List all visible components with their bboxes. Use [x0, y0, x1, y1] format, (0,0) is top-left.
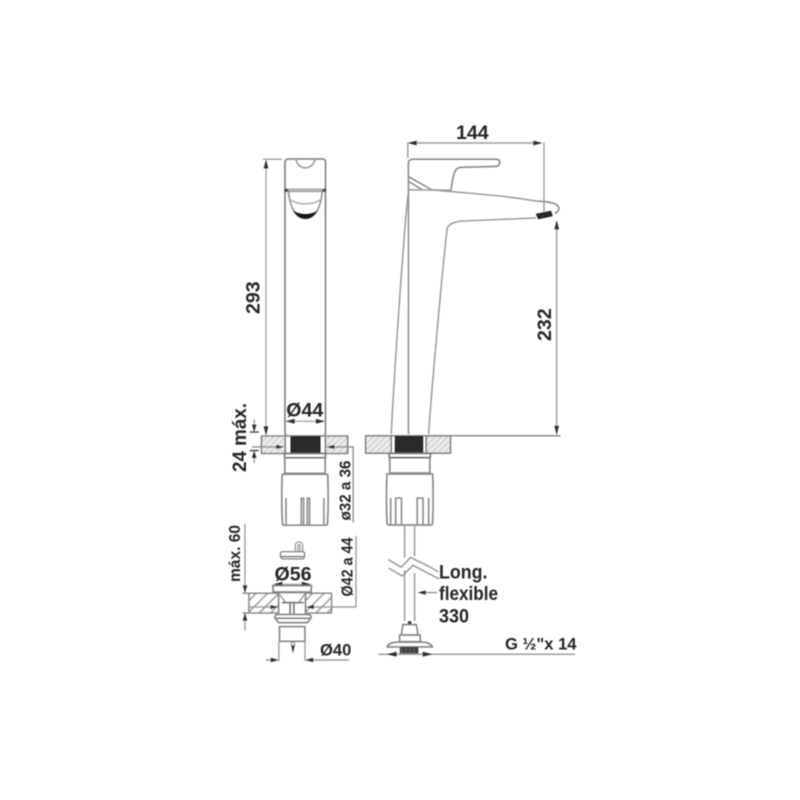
svg-text:144: 144	[456, 122, 489, 144]
svg-text:ø32 a 36: ø32 a 36	[338, 460, 355, 520]
svg-text:Long.: Long.	[439, 562, 488, 584]
svg-text:Ø42 a 44: Ø42 a 44	[339, 537, 356, 596]
svg-text:máx. 60: máx. 60	[227, 525, 244, 582]
svg-text:330: 330	[439, 605, 469, 627]
svg-text:G ½"x 14: G ½"x 14	[505, 635, 577, 654]
svg-text:24 máx.: 24 máx.	[229, 403, 251, 472]
svg-text:Ø56: Ø56	[275, 564, 312, 586]
svg-text:Ø40: Ø40	[320, 641, 351, 660]
svg-text:flexible: flexible	[439, 583, 498, 605]
svg-text:293: 293	[243, 281, 265, 314]
svg-text:232: 232	[534, 308, 556, 341]
svg-text:Ø44: Ø44	[286, 400, 323, 422]
